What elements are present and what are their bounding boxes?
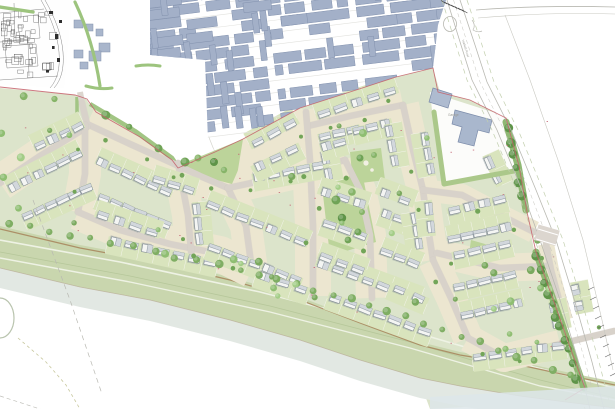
svg-text:Garage: Garage: [448, 113, 459, 117]
